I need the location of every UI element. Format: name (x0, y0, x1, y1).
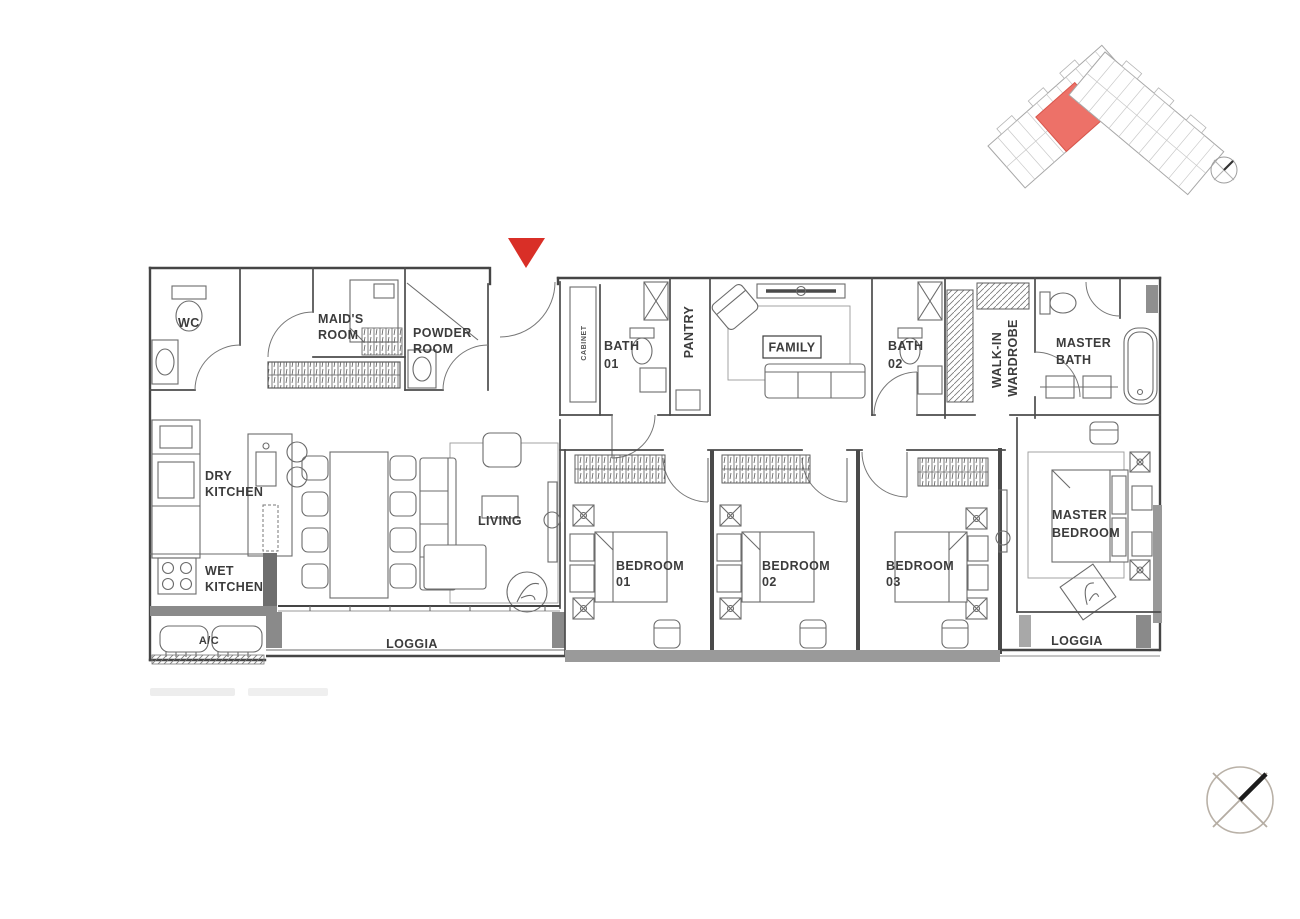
label-family: FAMILY (768, 341, 815, 355)
appliance-icon (676, 390, 700, 410)
key-plan-compass-icon (1211, 157, 1237, 183)
sink-icon (640, 368, 666, 392)
master-bedroom-room (1028, 422, 1162, 623)
bathtub-icon (1124, 328, 1157, 404)
nightstand-symbol (968, 565, 988, 590)
stool-icon (287, 442, 307, 462)
planter-symbol (552, 612, 565, 648)
svg-text:03: 03 (886, 575, 901, 589)
shower-icon (918, 282, 942, 320)
diffuser-icon (966, 508, 987, 529)
nightstand-symbol (717, 534, 741, 561)
label-loggia-right: LOGGIA (1051, 634, 1103, 648)
stool-symbol (942, 620, 968, 648)
svg-text:BEDROOM: BEDROOM (1052, 526, 1120, 540)
diffuser-icon (573, 598, 594, 619)
label-bath-02: BATH (888, 339, 923, 353)
svg-text:KITCHEN: KITCHEN (205, 580, 263, 594)
floor-plan-page: WC MAID'S ROOM POWDER ROOM CABINET BATH … (0, 0, 1300, 919)
wardrobe-shelving-symbol (977, 283, 1029, 309)
nightstand-symbol (717, 565, 741, 592)
nightstand-symbol (968, 536, 988, 561)
double-vanity-icon (1040, 376, 1118, 398)
label-powder-room: POWDER (413, 326, 472, 340)
entrance-door-arc (500, 282, 555, 337)
svg-text:01: 01 (604, 357, 619, 371)
label-bedroom-03: BEDROOM (886, 559, 954, 573)
wardrobe-symbol (362, 328, 402, 355)
label-wet-kitchen: WET (205, 564, 234, 578)
label-loggia-left: LOGGIA (386, 637, 438, 651)
nightstand-symbol (1132, 532, 1152, 556)
svg-text:ROOM: ROOM (413, 342, 454, 356)
floor-plan-drawing: WC MAID'S ROOM POWDER ROOM CABINET BATH … (0, 0, 1300, 919)
diffuser-icon (1130, 560, 1150, 580)
sink-icon (918, 366, 942, 394)
label-master-bedroom: MASTER (1052, 508, 1107, 522)
dining-table-symbol (330, 452, 388, 598)
svg-text:02: 02 (762, 575, 777, 589)
sofa-symbol (765, 364, 865, 398)
stool-icon (287, 467, 307, 487)
sofa-symbol (420, 458, 486, 590)
nightstand-symbol (570, 534, 594, 561)
foyer-walls (560, 282, 596, 415)
window-sill-band (565, 650, 1000, 662)
label-wc: WC (178, 316, 200, 330)
sink-icon (152, 340, 178, 384)
label-walk-in: WALK-IN (990, 332, 1004, 388)
entrance-marker-icon (508, 238, 545, 268)
nightstand-symbol (1132, 486, 1152, 510)
toilet-icon (1040, 292, 1076, 314)
diffuser-icon (1130, 452, 1150, 472)
label-master-bath: MASTER (1056, 336, 1111, 350)
compass-north-arm (1240, 774, 1266, 800)
ac-condenser-icon (212, 626, 262, 652)
label-ac: A/C (199, 635, 219, 647)
label-cabinet: CABINET (581, 325, 588, 360)
planter-symbol (1019, 615, 1031, 647)
nightstand-symbol (570, 565, 594, 592)
label-bath-01: BATH (604, 339, 639, 353)
shaft-symbol (1146, 285, 1158, 313)
planter-symbol (1136, 615, 1151, 648)
wardrobe-shelving-symbol (947, 290, 973, 402)
label-maids-room: MAID'S (318, 312, 364, 326)
label-bedroom-02: BEDROOM (762, 559, 830, 573)
chair-symbol (1090, 422, 1118, 444)
faint-fine-print (150, 688, 328, 696)
shower-icon (644, 282, 668, 320)
label-dry-kitchen: DRY (205, 469, 232, 483)
bedroom-03-room (862, 452, 988, 648)
svg-text:KITCHEN: KITCHEN (205, 485, 263, 499)
label-pantry: PANTRY (682, 306, 696, 359)
stool-symbol (654, 620, 680, 648)
diffuser-icon (720, 505, 741, 526)
wall-pier (263, 553, 277, 613)
svg-text:BATH: BATH (1056, 353, 1091, 367)
bedroom-02-room (717, 455, 847, 648)
diffuser-icon (720, 598, 741, 619)
key-plan (983, 40, 1237, 194)
planter-symbol (266, 612, 282, 648)
compass-icon (1207, 767, 1273, 833)
diffuser-icon (573, 505, 594, 526)
window-glazing-band (1153, 505, 1162, 623)
diffuser-icon (966, 598, 987, 619)
dining-chairs (302, 456, 416, 588)
svg-text:ROOM: ROOM (318, 328, 359, 342)
stove-icon (158, 558, 196, 594)
bath-01-room (560, 278, 710, 458)
dining-area (302, 452, 416, 598)
label-wardrobe: WARDROBE (1006, 319, 1020, 397)
svg-text:01: 01 (616, 575, 631, 589)
armchair-symbol (710, 283, 760, 332)
armchair-symbol (483, 433, 521, 467)
duct-symbol (263, 505, 278, 551)
wet-kitchen-room (150, 505, 278, 613)
label-bedroom-01: BEDROOM (616, 559, 684, 573)
stool-symbol (800, 620, 826, 648)
svg-text:02: 02 (888, 357, 903, 371)
label-living: LIVING (478, 514, 522, 528)
bedroom-01-room (570, 455, 708, 648)
foyer-shoe-cabinet (268, 362, 400, 388)
